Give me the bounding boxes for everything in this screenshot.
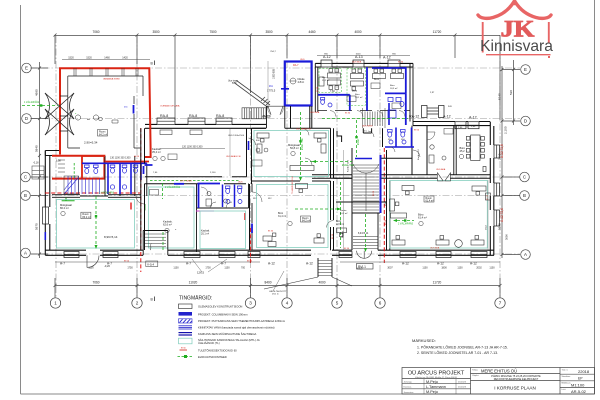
svg-text:EI 30: EI 30 xyxy=(332,233,334,239)
svg-text:4000: 4000 xyxy=(318,281,325,285)
svg-text:7500: 7500 xyxy=(209,30,216,34)
svg-text:OLEMASOLEV KONSTRUKTSIOON: OLEMASOLEV KONSTRUKTSIOON xyxy=(198,305,242,309)
svg-text:V-0,4: V-0,4 xyxy=(147,262,154,266)
svg-text:700: 700 xyxy=(241,267,246,270)
svg-text:3: 3 xyxy=(249,301,252,306)
svg-text:EP: EP xyxy=(578,377,583,381)
svg-text:1512: 1512 xyxy=(385,200,387,206)
svg-text:A-12: A-12 xyxy=(383,56,391,60)
svg-text:Kinnisvara: Kinnisvara xyxy=(480,38,553,55)
svg-text:61,4 m²: 61,4 m² xyxy=(426,200,434,203)
svg-text:D: D xyxy=(25,116,28,121)
svg-text:WC: WC xyxy=(388,139,392,141)
svg-text:TULEMÜÜR EI 60: TULEMÜÜR EI 60 xyxy=(291,175,294,194)
svg-text:VANA AVA KINNI: VANA AVA KINNI xyxy=(103,78,120,81)
svg-text:1750: 1750 xyxy=(127,267,133,270)
svg-text:EI 30: EI 30 xyxy=(317,86,319,92)
svg-text:1. PÕRANDATE LÕIKED JOONISE: 1. PÕRANDATE LÕIKED JOONISEL AR-7-13 JA … xyxy=(417,345,508,350)
svg-text:Mõõtkava: Mõõtkava xyxy=(562,382,572,385)
svg-text:D: D xyxy=(524,119,527,124)
svg-text:1100: 1100 xyxy=(489,267,495,270)
svg-text:EI 30: EI 30 xyxy=(268,231,274,233)
svg-text:1800: 1800 xyxy=(441,267,447,270)
svg-text:1520: 1520 xyxy=(86,56,92,59)
svg-text:120 1100 330 1300: 120 1100 330 1300 xyxy=(182,146,203,149)
svg-text:A-12: A-12 xyxy=(268,262,275,266)
svg-text:1100: 1100 xyxy=(88,267,94,270)
svg-text:WC: WC xyxy=(253,198,257,200)
svg-text:22018: 22018 xyxy=(578,369,590,374)
svg-text:1775,5: 1775,5 xyxy=(267,89,276,93)
svg-text:8,99=5,14: 8,99=5,14 xyxy=(104,235,118,239)
svg-text:45,2: 45,2 xyxy=(460,149,466,153)
svg-text:1100: 1100 xyxy=(422,267,428,270)
svg-text:PROJEKT. PUITKARKASS-SEIN TSEM: PROJEKT. PUITKARKASS-SEIN TSEMENTKIUDPLA… xyxy=(198,319,286,323)
svg-text:UUS AVA EI 30: UUS AVA EI 30 xyxy=(296,128,312,131)
svg-text:Koridor 8,6: Koridor 8,6 xyxy=(417,149,420,160)
svg-text:61,4 m²: 61,4 m² xyxy=(418,216,427,220)
svg-text:254,7: 254,7 xyxy=(270,51,276,53)
svg-text:RA-8: RA-8 xyxy=(160,114,168,118)
svg-text:A-12: A-12 xyxy=(306,262,313,266)
svg-text:1 VÄLJAPÄÄS: 1 VÄLJAPÄÄS xyxy=(24,101,40,104)
svg-text:29,1 m: 29,1 m xyxy=(272,294,279,296)
svg-text:2002: 2002 xyxy=(476,267,482,270)
svg-text:Leht: Leht xyxy=(562,388,566,391)
svg-text:UUS AVA: UUS AVA xyxy=(310,111,320,114)
svg-text:Staadium: Staadium xyxy=(562,375,571,378)
svg-text:3500: 3500 xyxy=(152,30,159,34)
svg-text:AR-5-02: AR-5-02 xyxy=(571,389,587,394)
svg-text:7,60: 7,60 xyxy=(330,90,335,93)
svg-text:Juhataja: Juhataja xyxy=(404,381,413,384)
svg-text:Töö nr.: Töö nr. xyxy=(562,368,569,371)
svg-text:A-12 72,6: A-12 72,6 xyxy=(500,208,504,222)
svg-text:M1:100: M1:100 xyxy=(571,382,585,387)
svg-text:130 1100 330 1300: 130 1100 330 1300 xyxy=(110,157,131,160)
svg-text:15,2 m²: 15,2 m² xyxy=(322,79,330,82)
svg-text:RA-12: RA-12 xyxy=(409,115,419,119)
svg-text:RA-8: RA-8 xyxy=(189,114,197,118)
svg-text:OÜ ARCUS PROJEKT: OÜ ARCUS PROJEKT xyxy=(408,370,465,377)
svg-text:22,6 m²: 22,6 m² xyxy=(336,223,344,226)
svg-text:UUS AVA: UUS AVA xyxy=(352,61,362,64)
svg-text:WC: WC xyxy=(401,139,405,141)
svg-text:4000: 4000 xyxy=(354,30,361,34)
svg-text:E: E xyxy=(25,66,28,71)
svg-text:Vabriku tee 5A GSM. Mudila 47,: Vabriku tee 5A GSM. Mudila 47, Pärnu 800… xyxy=(415,376,458,379)
svg-text:8400: 8400 xyxy=(264,281,271,285)
svg-text:86.2 m²: 86.2 m² xyxy=(60,206,69,210)
svg-text:Tambur: Tambur xyxy=(149,243,152,251)
svg-text:A-12: A-12 xyxy=(469,116,477,120)
svg-text:84,2 m²: 84,2 m² xyxy=(302,220,310,223)
svg-text:1100: 1100 xyxy=(173,267,179,270)
svg-text:1100: 1100 xyxy=(224,267,230,270)
svg-text:126,5: 126,5 xyxy=(197,271,204,275)
svg-text:MÄRKUSED:: MÄRKUSED: xyxy=(412,338,436,343)
svg-text:2,100: 2,100 xyxy=(210,172,216,174)
svg-text:EVAKUATSIOONITEED: EVAKUATSIOONITEED xyxy=(198,355,227,359)
svg-text:EI 60: EI 60 xyxy=(414,130,420,132)
svg-text:04.2023: 04.2023 xyxy=(458,382,467,384)
svg-text:EHIT. KINNI: EHIT. KINNI xyxy=(180,181,192,183)
svg-text:18,3 m²: 18,3 m² xyxy=(390,87,398,90)
svg-text:35,4 m²: 35,4 m² xyxy=(152,150,161,154)
svg-text:7060: 7060 xyxy=(92,30,99,34)
svg-text:PROJEKT. COLUMBIAKIVI SEIN 190: PROJEKT. COLUMBIAKIVI SEIN 190mm xyxy=(198,312,248,316)
svg-text:ÜLEJÄÄNUD (TL): ÜLEJÄÄNUD (TL) xyxy=(198,341,220,345)
svg-text:L.Tammann: L.Tammann xyxy=(426,385,446,389)
svg-text:M.Peju: M.Peju xyxy=(426,380,438,384)
svg-text:UUS AVA: UUS AVA xyxy=(430,247,440,250)
svg-text:5970: 5970 xyxy=(35,223,39,230)
svg-text:1512: 1512 xyxy=(486,224,488,230)
svg-text:UUS AVA: UUS AVA xyxy=(436,168,446,171)
svg-text:86.2 m²: 86.2 m² xyxy=(82,216,90,219)
svg-text:62,6 m²: 62,6 m² xyxy=(163,223,172,227)
svg-text:Ahi: Ahi xyxy=(87,118,91,121)
svg-text:EI 60: EI 60 xyxy=(385,219,387,225)
svg-text:Inv.: Inv. xyxy=(364,131,368,133)
svg-text:2,90=5,34: 2,90=5,34 xyxy=(84,141,98,145)
svg-text:UUS AVA EI 30: UUS AVA EI 30 xyxy=(226,155,242,158)
svg-text:E: E xyxy=(524,67,527,72)
svg-text:4000: 4000 xyxy=(357,267,363,270)
svg-text:EI 60: EI 60 xyxy=(124,261,130,263)
svg-text:EI 60: EI 60 xyxy=(247,261,253,263)
svg-text:Koridor 12,6: Koridor 12,6 xyxy=(347,159,350,172)
svg-text:Uus trepp: Uus trepp xyxy=(228,80,239,83)
svg-text:14,1 m²: 14,1 m² xyxy=(355,96,363,99)
svg-text:Koostas: Koostas xyxy=(404,386,413,389)
svg-text:1520: 1520 xyxy=(68,56,74,59)
svg-text:530: 530 xyxy=(509,90,513,95)
svg-text:A-10: A-10 xyxy=(264,115,271,119)
svg-text:3000: 3000 xyxy=(505,234,509,240)
svg-text:EVAK. TEE: EVAK. TEE xyxy=(301,138,304,150)
svg-text:5140: 5140 xyxy=(498,93,502,100)
svg-text:2: 2 xyxy=(136,301,139,306)
svg-text:TINGMÄRGID:: TINGMÄRGID: xyxy=(179,295,212,302)
svg-text:04.2023: 04.2023 xyxy=(458,387,467,389)
svg-text:Tellija:: Tellija: xyxy=(472,370,478,372)
svg-text:5: 5 xyxy=(336,301,339,306)
svg-text:57.5: 57.5 xyxy=(232,83,237,85)
svg-text:4460: 4460 xyxy=(308,30,315,34)
svg-text:UUS: UUS xyxy=(238,182,243,184)
svg-text:4.8m²: 4.8m² xyxy=(298,80,305,84)
svg-text:EVAK.: EVAK. xyxy=(357,138,360,145)
svg-text:Joonestas: Joonestas xyxy=(404,391,415,394)
svg-text:WC: WC xyxy=(268,198,272,200)
svg-text:1750: 1750 xyxy=(205,267,211,270)
svg-text:1: 1 xyxy=(54,301,57,306)
svg-text:Büro: Büro xyxy=(374,78,380,81)
svg-text:B: B xyxy=(24,193,27,198)
svg-text:4: 4 xyxy=(286,301,289,306)
svg-text:3007: 3007 xyxy=(387,267,393,270)
svg-text:1100: 1100 xyxy=(457,267,463,270)
svg-text:1420: 1420 xyxy=(122,56,128,59)
svg-text:REKONSTRUEERIMISE EELPROJEKT: REKONSTRUEERIMISE EELPROJEKT xyxy=(494,378,539,381)
svg-text:EI 30: EI 30 xyxy=(398,62,404,64)
svg-text:EI 30: EI 30 xyxy=(344,248,350,250)
svg-text:RA-8: RA-8 xyxy=(216,114,224,118)
svg-text:A: A xyxy=(24,251,27,256)
svg-text:1000 805: 1000 805 xyxy=(273,68,276,79)
svg-text:KINNITATAV VANA (kasutada sama: KINNITATAV VANA (kasutada samal ajal ole… xyxy=(198,325,275,329)
svg-text:7060: 7060 xyxy=(92,281,99,285)
svg-text:31,4 m²: 31,4 m² xyxy=(278,215,286,218)
svg-text:MERE EHITUS OÜ: MERE EHITUS OÜ xyxy=(481,369,517,374)
svg-text:Büro: Büro xyxy=(352,90,358,93)
svg-text:Büro: Büro xyxy=(322,76,327,79)
svg-text:A: A xyxy=(524,252,527,257)
svg-text:Büro: Büro xyxy=(355,93,360,96)
svg-text:EI 30: EI 30 xyxy=(345,113,351,115)
svg-text:4990: 4990 xyxy=(35,89,39,96)
svg-text:20,1 m²: 20,1 m² xyxy=(201,233,209,236)
svg-text:84.2 m²: 84.2 m² xyxy=(99,133,107,136)
svg-text:2,100: 2,100 xyxy=(504,126,508,134)
svg-text:EI 60: EI 60 xyxy=(134,156,140,158)
svg-text:2 VÄLJAPÄÄS: 2 VÄLJAPÄÄS xyxy=(165,186,181,189)
svg-text:5840: 5840 xyxy=(35,145,39,152)
svg-text:OLEMASOLEV AVA: OLEMASOLEV AVA xyxy=(160,105,180,108)
svg-text:11020: 11020 xyxy=(189,281,198,285)
svg-text:56,8 m²: 56,8 m² xyxy=(290,146,299,150)
svg-text:6: 6 xyxy=(379,301,382,306)
svg-text:1 VÄLJAPÄÄS: 1 VÄLJAPÄÄS xyxy=(99,192,115,195)
svg-text:Büro: Büro xyxy=(390,84,395,87)
svg-text:8,04=5,14: 8,04=5,14 xyxy=(358,233,369,235)
svg-text:44,2 m²: 44,2 m² xyxy=(340,212,348,215)
svg-text:C: C xyxy=(24,175,27,180)
svg-text:RA-7: RA-7 xyxy=(293,64,299,67)
svg-text:UUS SEIN: UUS SEIN xyxy=(362,126,373,128)
svg-text:EI 60: EI 60 xyxy=(373,190,375,196)
svg-text:UUS: UUS xyxy=(300,59,305,61)
svg-text:C: C xyxy=(523,175,526,180)
svg-text:Objekt:: Objekt: xyxy=(472,374,479,377)
svg-text:6,08: 6,08 xyxy=(56,160,61,163)
svg-text:A-12 72,6: A-12 72,6 xyxy=(500,144,504,158)
svg-text:7: 7 xyxy=(499,301,502,306)
svg-text:11720: 11720 xyxy=(433,281,442,285)
svg-text:B: B xyxy=(523,193,526,198)
svg-text:2 VÄLJAPÄÄS: 2 VÄLJAPÄÄS xyxy=(398,223,414,226)
svg-text:11720: 11720 xyxy=(433,30,442,34)
svg-text:2. SEINTE LÕIKED JOONISTEL: 2. SEINTE LÕIKED JOONISTEL AR 7-01 - AR … xyxy=(417,350,498,355)
svg-text:UUS 1200x2100: UUS 1200x2100 xyxy=(228,135,245,137)
svg-text:I KORRUSE PLAAN: I KORRUSE PLAAN xyxy=(494,386,536,391)
svg-text:M.Peju: M.Peju xyxy=(426,390,438,394)
svg-text:1460: 1460 xyxy=(104,56,110,59)
svg-text:3500: 3500 xyxy=(265,30,272,34)
svg-text:VÄLIS ÕHUVÕTT: VÄLIS ÕHUVÕTT xyxy=(269,290,287,293)
svg-text:-0,18: -0,18 xyxy=(33,162,39,165)
